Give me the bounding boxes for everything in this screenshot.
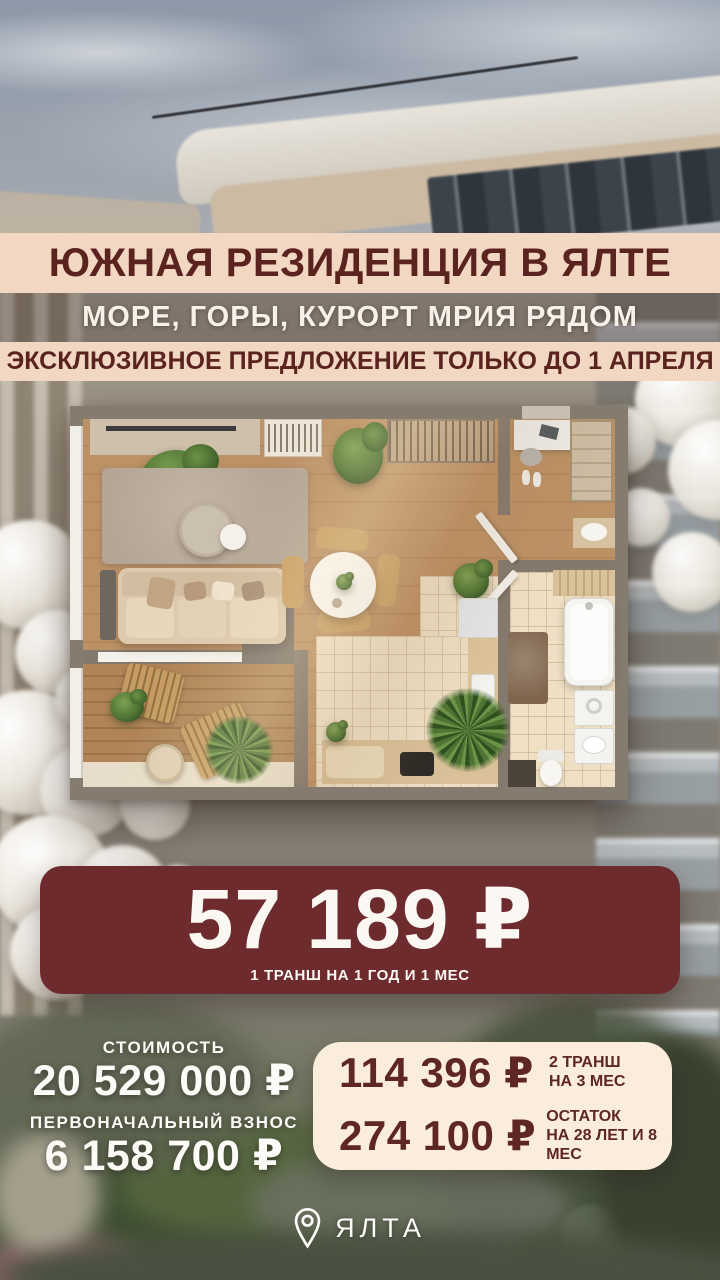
cost-value: 20 529 000 ₽ [32, 1058, 295, 1104]
balcony-glass [70, 668, 83, 778]
dining-chair [282, 556, 304, 608]
shoes [533, 472, 541, 487]
downpayment-value: 6 158 700 ₽ [45, 1133, 284, 1179]
living-window [70, 426, 83, 640]
tranche2-label: 2 ТРАНШ НА 3 МЕС [549, 1053, 625, 1091]
offer-note: ЭКСКЛЮЗИВНОЕ ПРЕДЛОЖЕНИЕ ТОЛЬКО ДО 1 АПР… [6, 347, 713, 376]
tranche2-amount: 114 396 ₽ [339, 1048, 539, 1097]
pricing-block: СТОИМОСТЬ 20 529 000 ₽ ПЕРВОНАЧАЛЬНЫЙ ВЗ… [18, 1038, 310, 1180]
location-badge: ЯЛТА [0, 1200, 720, 1256]
shoes [522, 470, 530, 485]
books [268, 424, 318, 452]
slatted-cabinet [387, 419, 495, 463]
kitchen-balcony-wall [294, 650, 308, 787]
tranche-card: 114 396 ₽ 2 ТРАНШ НА 3 МЕС 274 100 ₽ ОСТ… [313, 1042, 672, 1170]
kitchen-pot-plant [326, 722, 346, 742]
bath-faucet [585, 602, 593, 610]
throw-blanket [146, 576, 176, 610]
side-tray [220, 524, 246, 550]
hall-wall [498, 419, 510, 515]
pillow [211, 581, 235, 602]
bathtub-inner [570, 604, 608, 680]
monthly-payment-banner: 57 189 ₽ 1 ТРАНШ НА 1 ГОД И 1 МЕС [40, 866, 680, 994]
tv [106, 426, 236, 431]
balcony-plant [110, 692, 144, 722]
kitchen-palm [426, 688, 510, 772]
entry-door-opening [522, 406, 570, 419]
remainder-amount: 274 100 ₽ [339, 1111, 536, 1160]
table-plant [336, 574, 352, 590]
sofa-side-unit [100, 570, 116, 640]
washer-door [586, 698, 602, 714]
offer-banner: ЭКСКЛЮЗИВНОЕ ПРЕДЛОЖЕНИЕ ТОЛЬКО ДО 1 АПР… [0, 342, 720, 381]
tranche-row: 274 100 ₽ ОСТАТОК НА 28 ЛЕТ И 8 МЕС [339, 1107, 672, 1165]
balcony-table [146, 744, 184, 782]
plant-top-center [333, 428, 383, 484]
kitchen-bench [326, 746, 384, 778]
balcony-palm [204, 716, 274, 784]
subtitle-banner: МОРЕ, ГОРЫ, КУРОРТ МРИЯ РЯДОМ [0, 293, 720, 342]
cup [332, 598, 342, 608]
desk-chair [520, 448, 542, 466]
downpayment-label: ПЕРВОНАЧАЛЬНЫЙ ВЗНОС [30, 1113, 298, 1133]
poster-title: ЮЖНАЯ РЕЗИДЕНЦИЯ В ЯЛТЕ [49, 241, 672, 286]
toilet [540, 760, 562, 786]
pillow [183, 581, 207, 602]
map-pin-icon [294, 1207, 321, 1249]
wardrobe [570, 420, 613, 502]
monthly-note: 1 ТРАНШ НА 1 ГОД И 1 МЕС [250, 967, 469, 984]
bath-rug [508, 632, 548, 704]
location-label: ЯЛТА [335, 1213, 426, 1244]
cost-label: СТОИМОСТЬ [103, 1038, 226, 1058]
tranche-row: 114 396 ₽ 2 ТРАНШ НА 3 МЕС [339, 1048, 672, 1097]
monthly-amount: 57 189 ₽ [187, 877, 534, 961]
sofa [118, 568, 286, 644]
remainder-label: ОСТАТОК НА 28 ЛЕТ И 8 МЕС [546, 1107, 672, 1165]
bath-dark-cabinet [508, 760, 536, 787]
wash-basin [582, 736, 606, 754]
title-banner: ЮЖНАЯ РЕЗИДЕНЦИЯ В ЯЛТЕ [0, 233, 720, 293]
floorplan-image [70, 406, 628, 800]
fridge [458, 598, 498, 638]
promo-poster: ЮЖНАЯ РЕЗИДЕНЦИЯ В ЯЛТЕ МОРЕ, ГОРЫ, КУРО… [0, 0, 720, 1280]
dining-chair [315, 526, 369, 552]
poster-subtitle: МОРЕ, ГОРЫ, КУРОРТ МРИЯ РЯДОМ [82, 301, 638, 334]
bath-vanity [553, 570, 615, 596]
hall-basin [581, 523, 607, 541]
cooktop [400, 752, 434, 776]
plant-dining [453, 563, 489, 599]
